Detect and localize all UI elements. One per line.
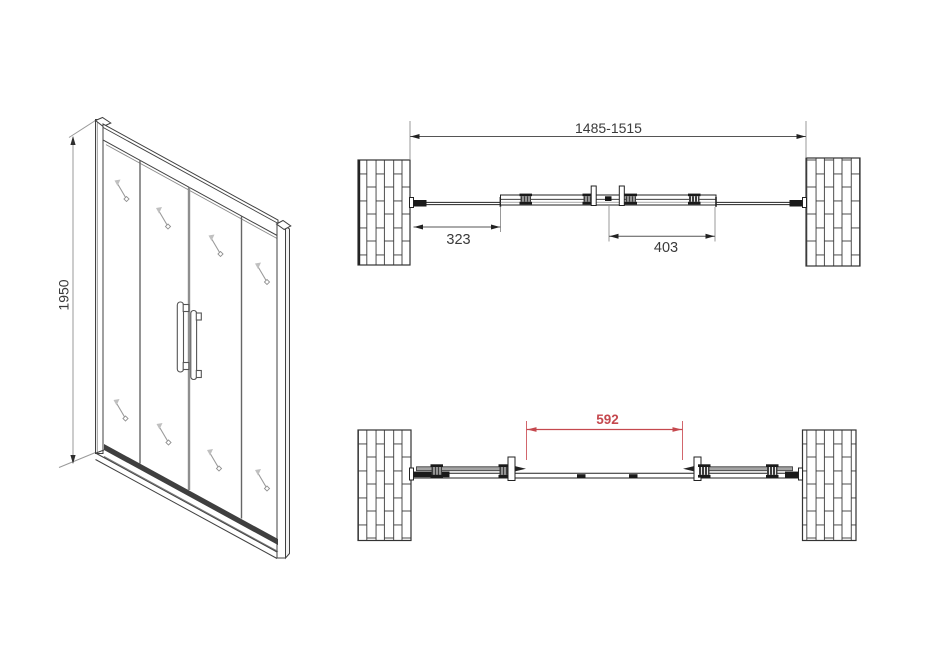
svg-text:592: 592 xyxy=(596,412,619,427)
svg-text:403: 403 xyxy=(654,240,678,256)
svg-text:1950: 1950 xyxy=(56,279,72,310)
svg-text:323: 323 xyxy=(446,232,470,248)
svg-text:1485-1515: 1485-1515 xyxy=(575,120,642,136)
